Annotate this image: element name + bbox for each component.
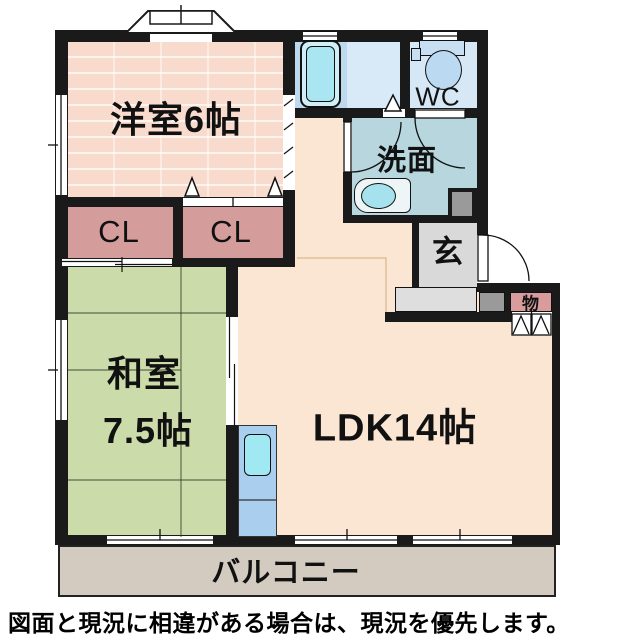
closet2-door-opening [183, 198, 283, 206]
room-label-japanese-1: 和室 [107, 345, 181, 397]
room-label-entrance: 玄 [432, 227, 464, 272]
closet1-sliding-door [62, 259, 172, 266]
room-label-washroom: 洗面 [377, 137, 437, 179]
western-room-door-opening [283, 95, 295, 190]
room-label-balcony: バルコニー [211, 549, 360, 591]
wc-window [423, 31, 457, 41]
floor-plan: 洋室6帖 CL CL 和室 7.5帖 LDK14帖 洗面 WC 玄 物 バルコニ… [0, 0, 640, 640]
bath-window [303, 31, 337, 41]
room-label-ldk: LDK14帖 [313, 397, 477, 452]
disclaimer-text: 図面と現況に相違がある場合は、現況を優先します。 [8, 604, 636, 638]
western-room-window [56, 95, 67, 195]
japanese-room-window [56, 320, 67, 420]
japanese-room-sliding-door [226, 317, 238, 425]
entrance-step [395, 287, 477, 312]
room-label-closet1: CL [98, 214, 140, 250]
bath-washarea-floor [347, 42, 400, 108]
bath-door-opening [383, 109, 405, 117]
wash-basin [361, 183, 396, 209]
toilet-flush-box [411, 48, 421, 61]
wall [173, 197, 183, 267]
bathtub-inner [306, 46, 335, 102]
balcony-window-2 [295, 536, 397, 544]
entry-door-opening [477, 235, 488, 283]
bay-window-opening [150, 30, 212, 42]
room-label-western: 洋室6帖 [110, 91, 242, 143]
washroom-door-opening [343, 122, 352, 172]
kitchen-sink [244, 434, 271, 476]
room-label-storage: 物 [522, 290, 540, 315]
wall [477, 283, 560, 292]
wall [385, 312, 512, 322]
bay-window [126, 5, 236, 33]
balcony-window-1 [107, 536, 213, 544]
room-label-closet2: CL [210, 214, 252, 250]
wall [400, 30, 410, 118]
wall [412, 223, 419, 287]
room-label-wc: WC [415, 82, 460, 113]
ldk-floor-upper [238, 267, 295, 322]
pillar-face [452, 192, 472, 216]
room-label-japanese-2: 7.5帖 [103, 402, 193, 454]
wall [552, 283, 560, 545]
entrance-stone [479, 292, 505, 312]
balcony-window-3 [413, 536, 512, 544]
